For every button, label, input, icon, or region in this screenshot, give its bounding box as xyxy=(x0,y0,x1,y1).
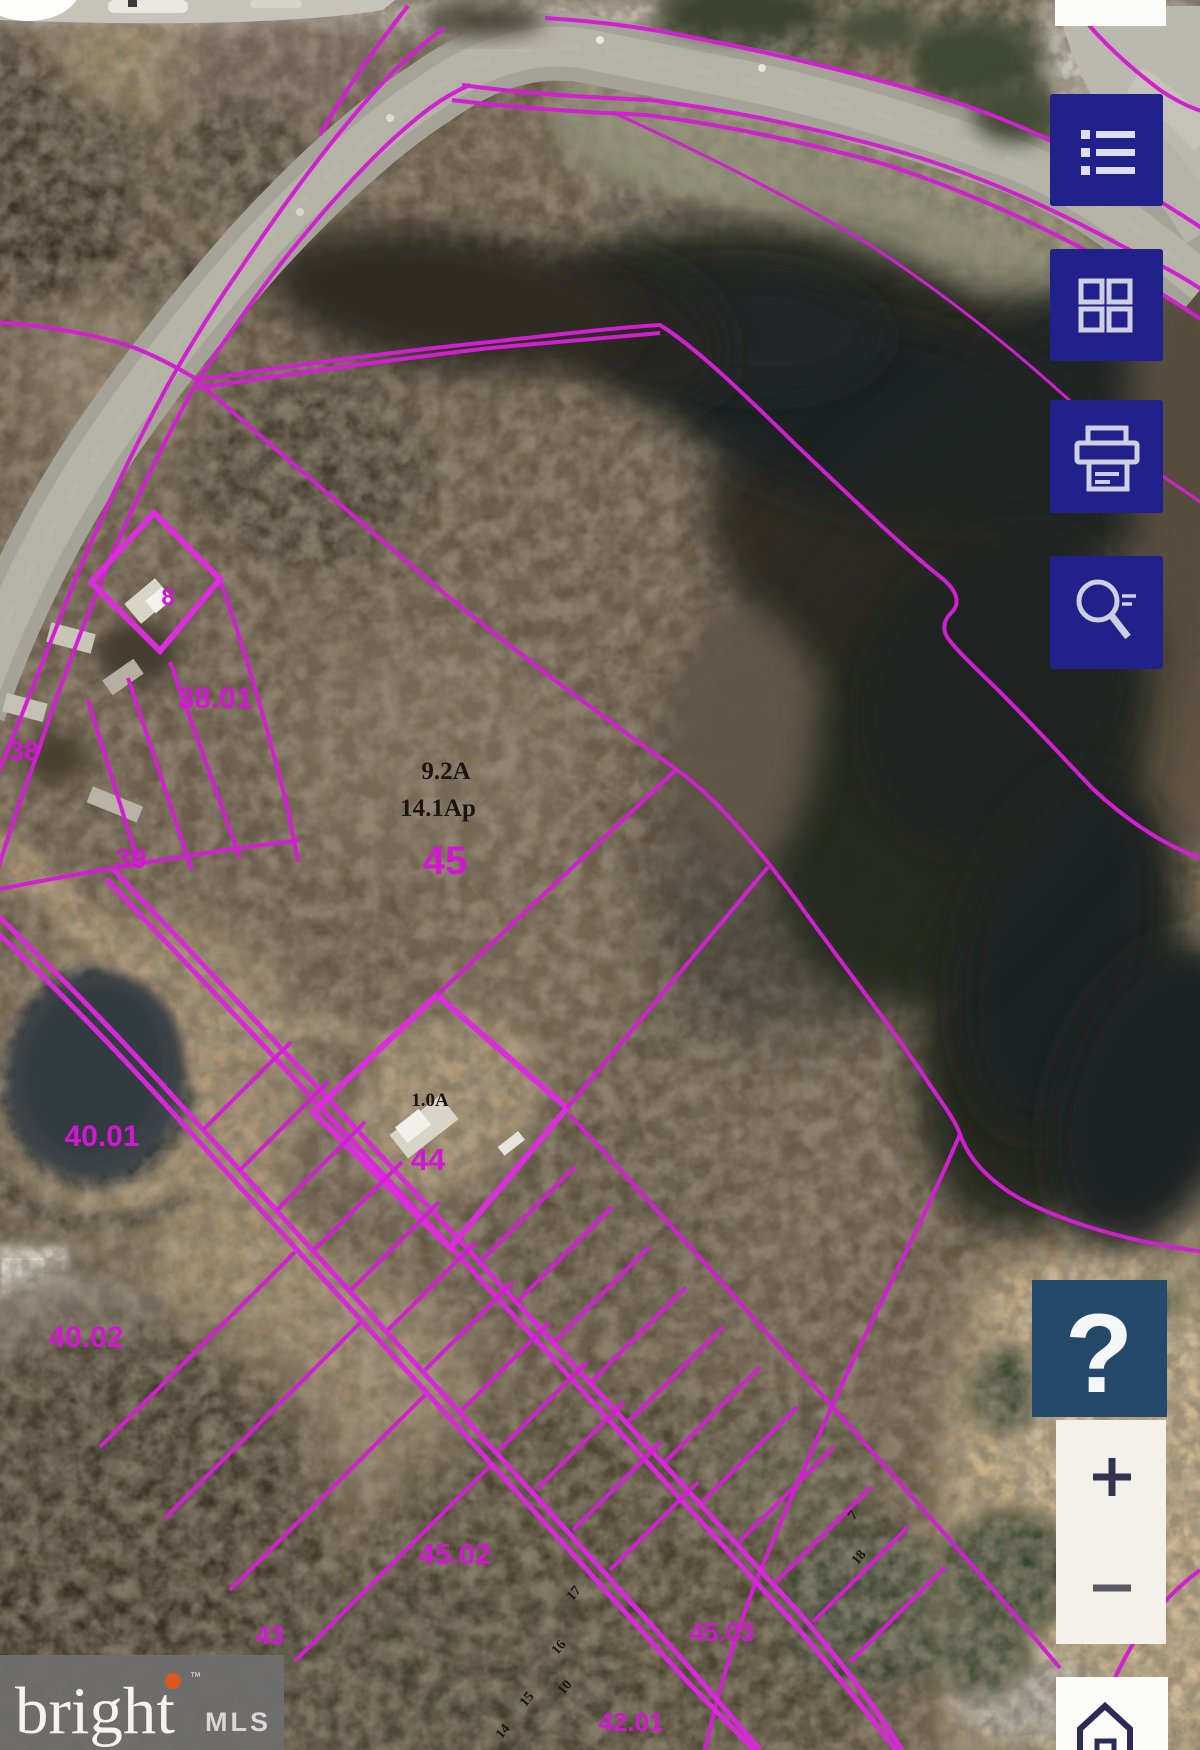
svg-text:8: 8 xyxy=(161,584,174,611)
svg-text:42.01: 42.01 xyxy=(598,1707,663,1737)
svg-text:?: ? xyxy=(1065,1291,1133,1416)
svg-text:44: 44 xyxy=(411,1142,446,1177)
svg-text:MLS: MLS xyxy=(205,1707,271,1737)
svg-text:bright: bright xyxy=(15,1674,175,1748)
svg-text:38: 38 xyxy=(9,736,39,766)
svg-text:™: ™ xyxy=(190,1671,201,1683)
svg-text:43: 43 xyxy=(256,1620,285,1650)
svg-text:40.02: 40.02 xyxy=(48,1321,123,1354)
svg-text:9.2A: 9.2A xyxy=(421,758,470,785)
svg-text:45.02: 45.02 xyxy=(419,1539,492,1571)
svg-text:1.0A: 1.0A xyxy=(411,1090,449,1111)
svg-text:14.1Ap: 14.1Ap xyxy=(400,795,476,822)
svg-text:38.01: 38.01 xyxy=(177,682,252,715)
svg-text:40.01: 40.01 xyxy=(64,1120,139,1153)
svg-text:45.03: 45.03 xyxy=(689,1617,754,1647)
svg-text:45: 45 xyxy=(423,839,468,883)
svg-text:39: 39 xyxy=(115,843,146,874)
